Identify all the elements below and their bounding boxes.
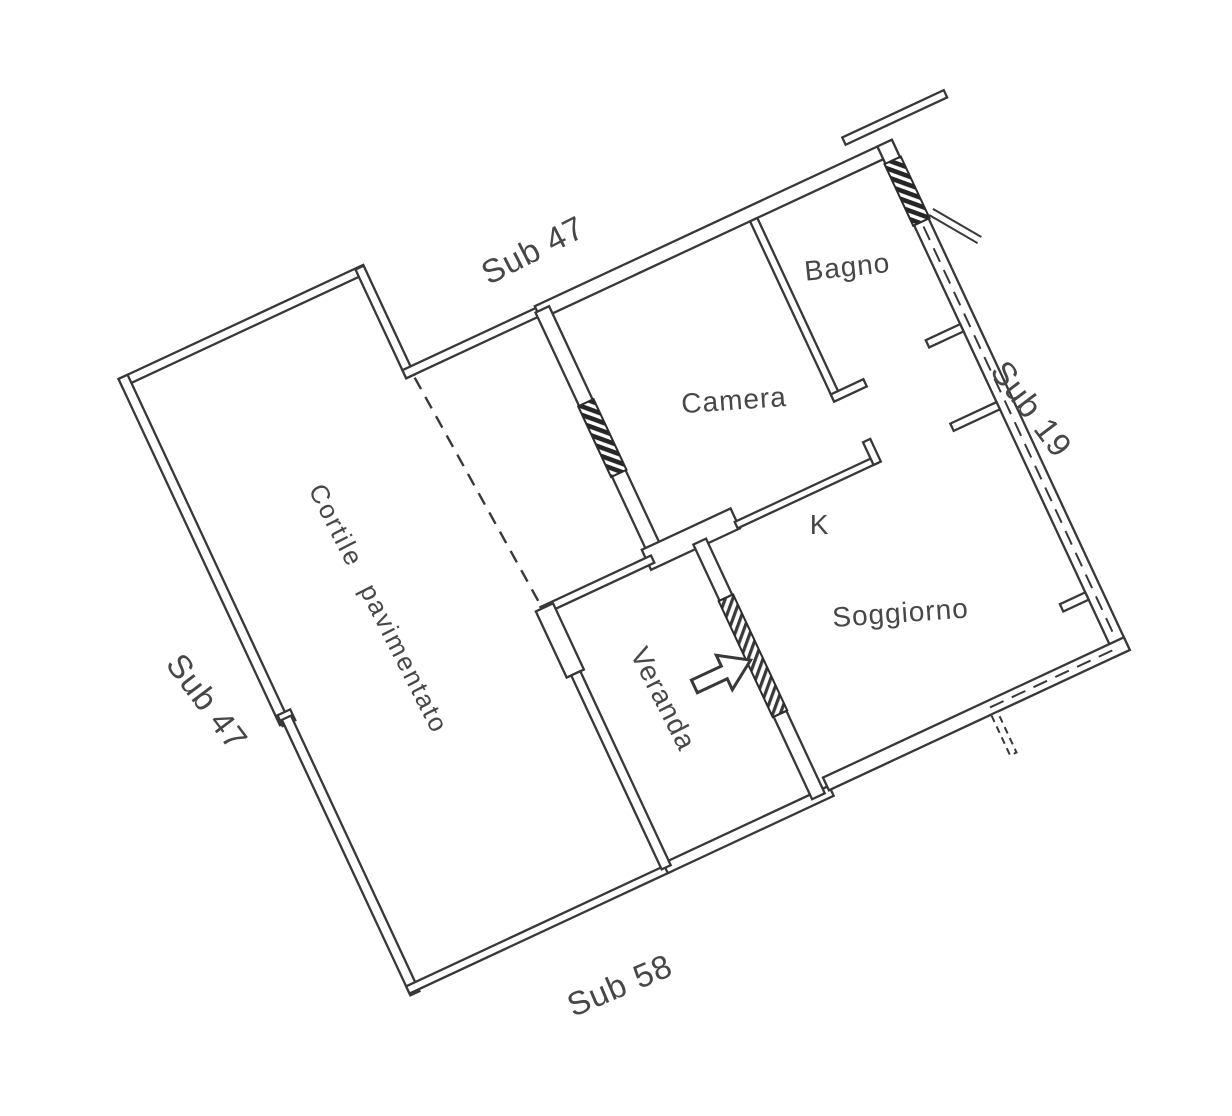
floor-plan-canvas: Sub 47 Sub 47 Sub 19 Sub 58 Camera Bagno… <box>0 0 1232 1116</box>
room-label-kitchen: K <box>810 509 830 540</box>
scanned-floor-plan-page: Sub 47 Sub 47 Sub 19 Sub 58 Camera Bagno… <box>0 0 1232 1116</box>
paper-background <box>0 0 1232 1116</box>
